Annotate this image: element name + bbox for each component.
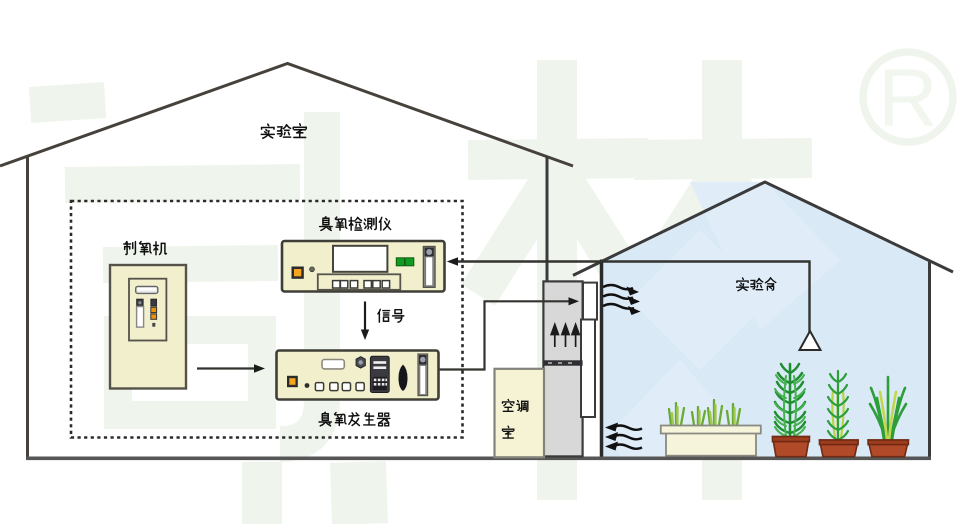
svg-text:R: R: [878, 53, 937, 144]
